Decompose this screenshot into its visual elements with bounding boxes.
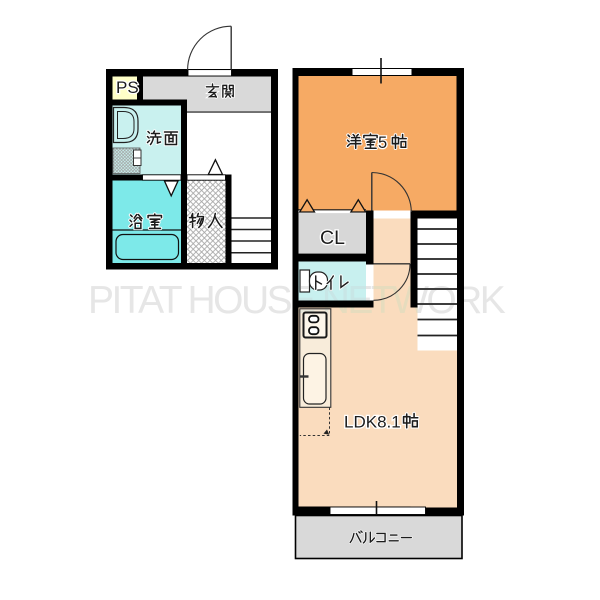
svg-text:CL: CL [320,227,345,249]
svg-text:LDK8.1: LDK8.1 [344,413,401,432]
svg-text:5: 5 [378,134,387,152]
svg-text:PITAT HOUSE NETWORK: PITAT HOUSE NETWORK [88,279,506,322]
svg-text:PS: PS [116,78,139,97]
